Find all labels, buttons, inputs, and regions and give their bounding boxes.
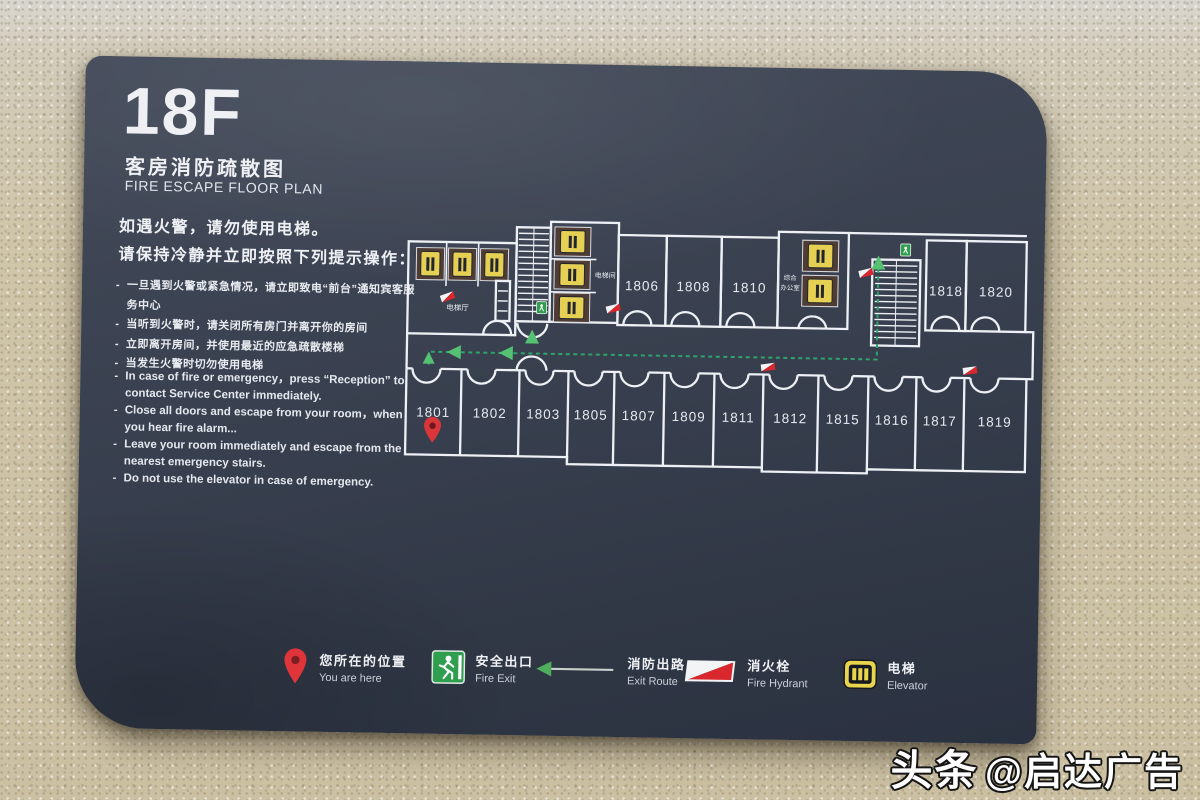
legend-zh-label: 消防出路 xyxy=(627,653,685,673)
elevator-icon xyxy=(416,247,445,279)
fire-escape-sign-board: 18F 客房消防疏散图 FIRE ESCAPE FLOOR PLAN 如遇火警，… xyxy=(74,56,1048,745)
legend-fire-hydrant: 消火栓 Fire Hydrant xyxy=(683,654,808,690)
instruction-line: Leave your room immediately and escape f… xyxy=(113,436,406,475)
instructions-zh: 一旦遇到火警或紧急情况，请立即致电“前台”通知宾客服务中心当听到火警时，请关闭所… xyxy=(114,276,422,379)
room-number: 1808 xyxy=(676,279,710,295)
room-number: 1802 xyxy=(473,405,507,421)
floor-plan: 电梯厅电梯间18061808181018181820综合办公室180118021… xyxy=(397,211,1041,480)
floor-plan-drawing: 电梯厅电梯间18061808181018181820综合办公室180118021… xyxy=(397,211,1041,480)
elevator-icon xyxy=(555,227,592,257)
room-number: 1820 xyxy=(979,284,1013,300)
fire-hydrant-icon xyxy=(683,659,737,684)
instruction-line: Close all doors and escape from your roo… xyxy=(113,402,406,441)
legend-exit-route: 消防出路 Exit Route xyxy=(531,652,686,689)
instruction-line: In case of fire or emergency，press “Rece… xyxy=(114,368,407,407)
legend-en-label: You are here xyxy=(319,672,406,686)
elevator-icon xyxy=(448,248,477,280)
location-pin-icon xyxy=(281,647,310,685)
elevator-room-label: 电梯间 xyxy=(595,271,616,280)
fire-exit-marker xyxy=(901,244,911,256)
elevator-icon xyxy=(802,275,839,307)
room-number: 1810 xyxy=(732,280,766,296)
watermark-brand: 头条 xyxy=(890,747,978,794)
legend-zh-label: 您所在的位置 xyxy=(319,650,406,671)
room-number: 1819 xyxy=(978,414,1012,430)
elevator-icon xyxy=(554,260,591,290)
elevator-icon xyxy=(553,293,590,323)
legend-zh-label: 消火栓 xyxy=(747,655,808,675)
fire-exit-marker xyxy=(537,302,547,314)
route-arrow xyxy=(447,345,461,359)
you-are-here-pin xyxy=(424,417,441,443)
room-number: 1817 xyxy=(923,413,957,429)
fire-hydrant-marker xyxy=(963,366,978,375)
legend-you-are-here: 您所在的位置 You are here xyxy=(281,647,407,687)
room-number: 1812 xyxy=(773,411,807,427)
elevator-icon xyxy=(802,240,839,272)
legend-elevator: 电梯 Elevator xyxy=(843,657,928,692)
legend-en-label: Fire Hydrant xyxy=(747,677,808,690)
room-number: 1809 xyxy=(672,409,706,425)
instructions-en: In case of fire or emergency，press “Rece… xyxy=(112,368,406,492)
exit-route-arrow-icon xyxy=(531,658,617,681)
room-number: 1803 xyxy=(526,406,560,422)
room-number: 1815 xyxy=(826,412,860,428)
sign-title-en: FIRE ESCAPE FLOOR PLAN xyxy=(125,177,324,196)
legend-zh-label: 电梯 xyxy=(887,658,928,678)
fire-hydrant-marker xyxy=(761,363,776,372)
room-number: 1816 xyxy=(875,412,909,428)
office-label: 办公室 xyxy=(780,283,800,292)
fire-hydrant-marker xyxy=(440,291,456,302)
watermark-handle: @启达广告 xyxy=(985,752,1184,794)
floor-number: 18F xyxy=(122,72,243,150)
room-number: 1806 xyxy=(625,278,659,294)
elevator-icon xyxy=(843,659,878,690)
watermark: 头条 @启达广告 xyxy=(890,737,1184,798)
route-arrow xyxy=(423,352,435,364)
fire-exit-icon xyxy=(431,650,466,685)
route-arrow xyxy=(499,346,513,360)
legend-fire-exit: 安全出口 Fire Exit xyxy=(431,650,534,686)
room-number: 1807 xyxy=(622,408,656,424)
legend-en-label: Elevator xyxy=(887,680,928,693)
room-number: 1811 xyxy=(722,410,755,426)
room-number: 1805 xyxy=(574,407,608,423)
instruction-line: 一旦遇到火警或紧急情况，请立即致电“前台”通知宾客服务中心 xyxy=(115,276,422,320)
room-number: 1818 xyxy=(929,283,963,299)
elevator-icon xyxy=(480,249,509,281)
intro-text-zh: 如遇火警，请勿使用电梯。 请保持冷静并立即按照下列提示操作： xyxy=(118,213,416,274)
legend-zh-label: 安全出口 xyxy=(475,651,533,671)
legend-en-label: Fire Exit xyxy=(475,673,533,686)
office-label: 综合 xyxy=(784,273,798,282)
elevator-hall-label: 电梯厅 xyxy=(446,302,469,312)
legend-en-label: Exit Route xyxy=(627,675,685,688)
